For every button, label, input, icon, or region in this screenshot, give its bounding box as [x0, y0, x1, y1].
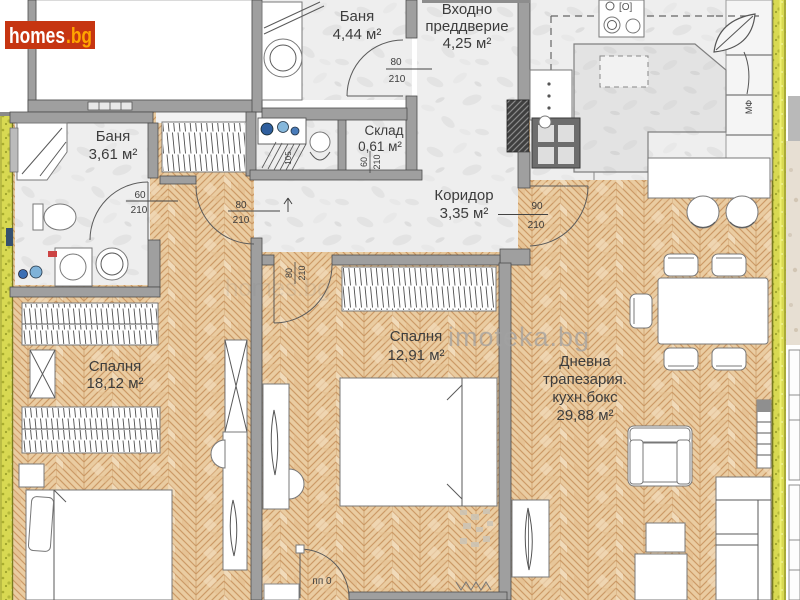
svg-text:105: 105: [284, 151, 293, 165]
svg-text:90: 90: [531, 201, 543, 212]
svg-text:Склад: Склад: [364, 123, 403, 138]
svg-text:60: 60: [359, 157, 369, 167]
svg-text:Коридор: Коридор: [434, 187, 493, 204]
svg-text:210: 210: [372, 154, 382, 169]
svg-text:МФ: МФ: [744, 100, 754, 114]
svg-text:80: 80: [390, 57, 402, 68]
svg-text:60: 60: [134, 190, 146, 201]
svg-text:4,25 м²: 4,25 м²: [443, 35, 492, 52]
svg-text:homes: homes: [9, 23, 65, 48]
svg-text:210: 210: [131, 205, 148, 216]
svg-text:210: 210: [233, 215, 250, 226]
svg-text:12,91 м²: 12,91 м²: [387, 347, 444, 364]
svg-text:.bg: .bg: [66, 23, 92, 48]
svg-text:кухн.бокс: кухн.бокс: [552, 389, 618, 406]
svg-text:Баня: Баня: [96, 128, 131, 145]
svg-text:Спалня: Спалня: [89, 358, 141, 375]
svg-text:imoteka.bg: imoteka.bg: [448, 322, 590, 352]
svg-text:4,44 м²: 4,44 м²: [333, 26, 382, 43]
svg-text:Дневна: Дневна: [559, 353, 611, 370]
svg-text:0,61 м²: 0,61 м²: [358, 139, 402, 154]
svg-text:3,35 м²: 3,35 м²: [440, 205, 489, 222]
svg-text:80: 80: [235, 200, 247, 211]
svg-text:[O]: [O]: [619, 2, 633, 13]
svg-text:210: 210: [389, 74, 406, 85]
svg-text:Баня: Баня: [340, 8, 375, 25]
svg-text:Входно: Входно: [442, 1, 493, 18]
svg-text:18,12 м²: 18,12 м²: [86, 375, 143, 392]
svg-text:трапезария.: трапезария.: [543, 371, 627, 388]
svg-text:29,88 м²: 29,88 м²: [556, 407, 613, 424]
svg-text:homes.bg: homes.bg: [225, 275, 330, 302]
svg-text:210: 210: [528, 220, 545, 231]
svg-text:Спалня: Спалня: [390, 328, 442, 345]
svg-text:пп 0: пп 0: [312, 576, 332, 587]
svg-text:3,61 м²: 3,61 м²: [89, 146, 138, 163]
svg-text:преддверие: преддверие: [425, 18, 508, 35]
